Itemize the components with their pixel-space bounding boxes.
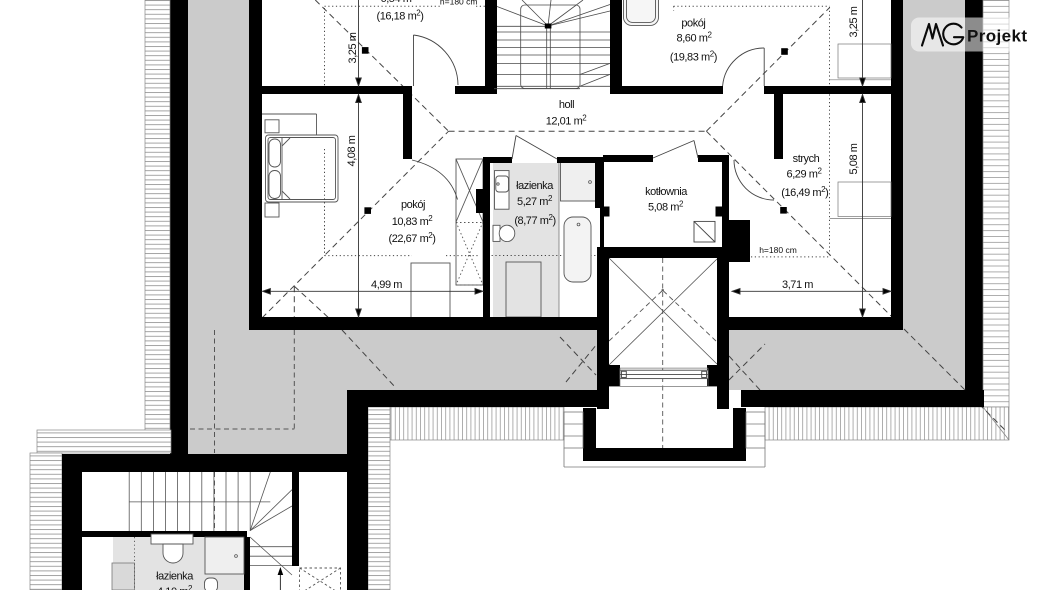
svg-text:12,01 m2: 12,01 m2 [546, 114, 588, 128]
svg-text:kotłownia: kotłownia [645, 186, 688, 198]
svg-text:5,27 m2: 5,27 m2 [517, 194, 553, 208]
svg-text:3,25 m: 3,25 m [848, 6, 860, 37]
svg-text:łazienka: łazienka [516, 180, 554, 192]
svg-text:6,29 m2: 6,29 m2 [787, 167, 823, 181]
svg-text:5,08 m: 5,08 m [848, 143, 860, 174]
svg-text:8,60 m2: 8,60 m2 [677, 31, 713, 45]
svg-text:strych: strych [793, 153, 820, 165]
svg-text:h=180 cm: h=180 cm [759, 245, 797, 255]
svg-text:6,54 m2: 6,54 m2 [381, 0, 417, 5]
svg-text:Projekt: Projekt [967, 27, 1027, 46]
svg-text:holl: holl [559, 99, 574, 111]
svg-text:3,71 m: 3,71 m [782, 279, 813, 291]
svg-text:pokój: pokój [681, 18, 705, 30]
svg-text:pokój: pokój [401, 199, 425, 211]
svg-text:10,83 m2: 10,83 m2 [392, 214, 434, 228]
svg-text:4,99 m: 4,99 m [371, 279, 402, 291]
svg-text:h=180 cm: h=180 cm [440, 0, 478, 7]
svg-text:łazienka: łazienka [156, 571, 194, 583]
svg-text:3,25 m: 3,25 m [347, 32, 359, 63]
svg-text:5,08 m2: 5,08 m2 [648, 200, 684, 214]
svg-text:4,08 m: 4,08 m [346, 135, 358, 166]
